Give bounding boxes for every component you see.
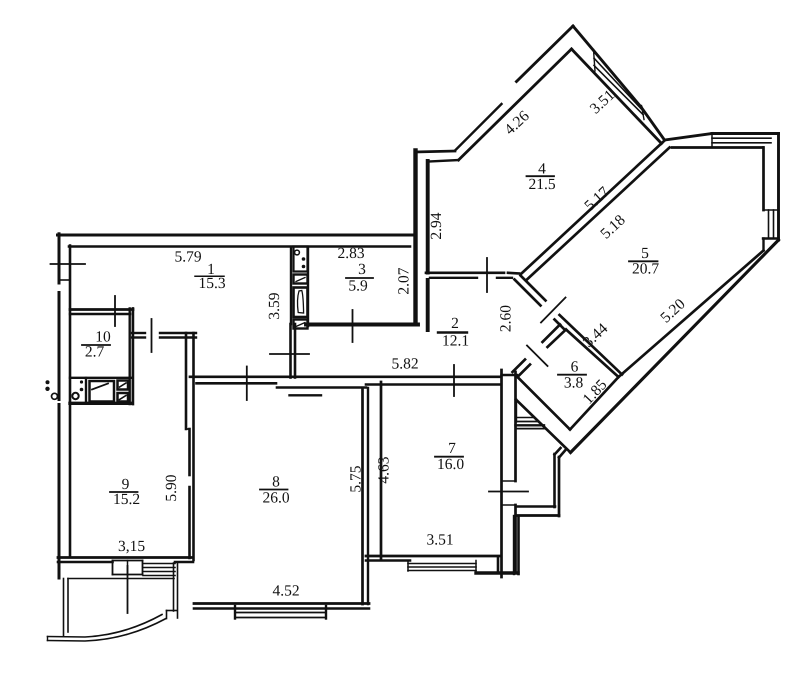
svg-text:5.9: 5.9 — [348, 278, 368, 295]
svg-text:5.79: 5.79 — [174, 249, 201, 266]
svg-text:5.82: 5.82 — [391, 356, 418, 373]
svg-text:5: 5 — [641, 245, 649, 262]
svg-text:4.52: 4.52 — [272, 583, 299, 600]
svg-text:3.59: 3.59 — [266, 292, 283, 319]
svg-text:2.07: 2.07 — [396, 267, 413, 294]
svg-text:8: 8 — [272, 474, 280, 491]
svg-text:20.7: 20.7 — [632, 261, 659, 278]
svg-text:6: 6 — [571, 359, 579, 376]
svg-text:3: 3 — [358, 261, 366, 278]
svg-text:3.8: 3.8 — [564, 375, 584, 392]
svg-text:26.0: 26.0 — [262, 490, 289, 507]
svg-text:7: 7 — [448, 440, 456, 457]
svg-text:16.0: 16.0 — [437, 456, 464, 473]
svg-text:12.1: 12.1 — [442, 333, 469, 350]
svg-text:3,15: 3,15 — [118, 538, 145, 555]
svg-text:2: 2 — [451, 315, 459, 332]
svg-text:21.5: 21.5 — [528, 176, 555, 193]
svg-text:4: 4 — [538, 161, 546, 178]
svg-text:15.2: 15.2 — [113, 491, 140, 508]
svg-text:2.7: 2.7 — [85, 344, 105, 361]
svg-text:5.90: 5.90 — [163, 474, 180, 501]
svg-text:4.63: 4.63 — [376, 456, 393, 483]
svg-text:2.83: 2.83 — [337, 245, 364, 262]
svg-text:5.75: 5.75 — [348, 465, 365, 492]
svg-text:2.60: 2.60 — [498, 305, 515, 332]
svg-text:3.51: 3.51 — [426, 532, 453, 549]
svg-text:2.94: 2.94 — [428, 212, 445, 239]
svg-text:15.3: 15.3 — [198, 275, 225, 292]
